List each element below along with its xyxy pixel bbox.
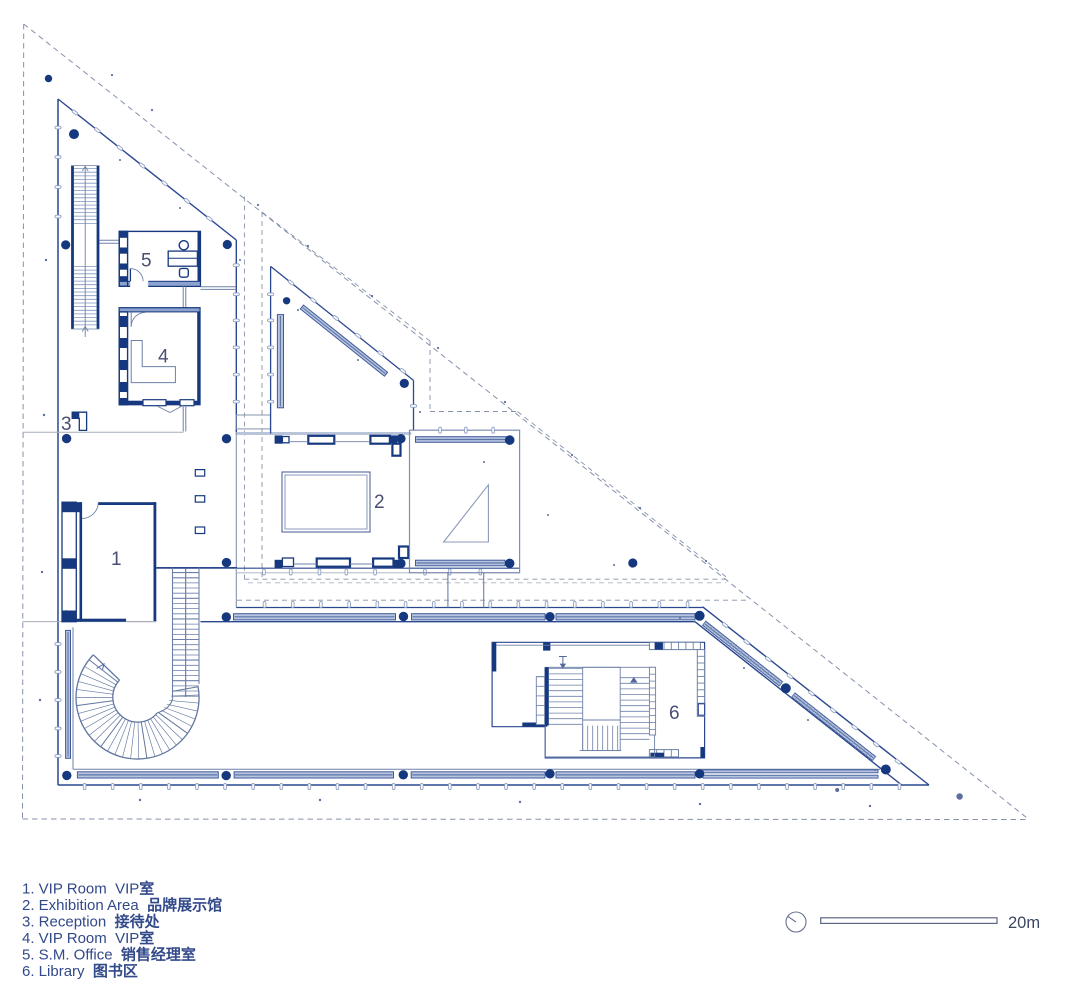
svg-text:3: 3 <box>61 414 72 435</box>
svg-text:5: 5 <box>141 251 152 272</box>
svg-text:5. S.M. Office 销售经理室: 5. S.M. Office 销售经理室 <box>22 946 196 964</box>
svg-text:6. Library 图书区: 6. Library 图书区 <box>22 962 138 980</box>
svg-text:2: 2 <box>374 492 385 513</box>
svg-text:3. Reception 接待处: 3. Reception 接待处 <box>22 913 161 931</box>
svg-text:2. Exhibition Area 品牌展示馆: 2. Exhibition Area 品牌展示馆 <box>22 896 222 914</box>
svg-text:4: 4 <box>158 347 169 368</box>
svg-text:20m: 20m <box>1008 914 1040 932</box>
svg-text:1. VIP Room VIP室: 1. VIP Room VIP室 <box>22 880 154 898</box>
svg-text:1: 1 <box>111 549 122 570</box>
svg-text:6: 6 <box>669 703 680 724</box>
svg-text:4. VIP Room VIP室: 4. VIP Room VIP室 <box>22 929 154 947</box>
